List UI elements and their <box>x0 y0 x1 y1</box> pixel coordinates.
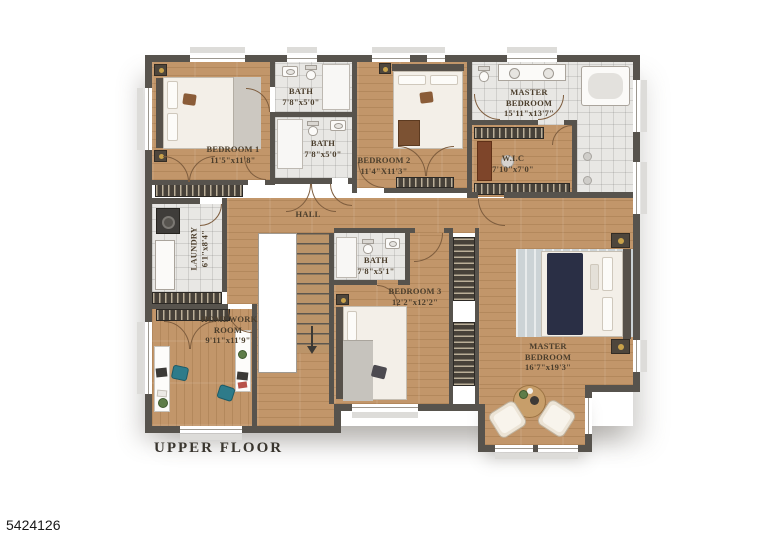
wall <box>334 228 415 233</box>
floor-plant <box>158 398 168 408</box>
window <box>352 404 418 411</box>
pillow <box>430 75 458 85</box>
room-label-master-bedroom: MASTER BEDROOM16'7"x19'3" <box>506 341 590 373</box>
window <box>145 322 152 394</box>
closet-master-a <box>453 237 475 301</box>
window <box>190 55 245 62</box>
bed-throw <box>343 340 373 401</box>
window-sill <box>372 47 445 53</box>
shower-icon <box>322 64 350 110</box>
washer-icon <box>156 208 180 234</box>
sink-icon <box>330 120 346 131</box>
accent-pillow <box>182 93 196 106</box>
window-sill <box>137 88 143 150</box>
wall <box>270 112 357 117</box>
window <box>585 398 592 434</box>
desk-plant <box>238 350 247 359</box>
window-sill <box>287 47 317 53</box>
nightstand <box>611 339 630 354</box>
toilet-icon <box>305 65 317 81</box>
room-label-bath-middle: BATH7'8"x5'0" <box>298 138 348 159</box>
desk-chair <box>171 364 190 381</box>
laptop-icon <box>156 367 168 377</box>
wall <box>384 188 472 193</box>
wall <box>475 228 479 404</box>
closet-bedroom-1 <box>155 184 243 197</box>
stairs <box>297 233 329 353</box>
room-label-bath-lower: BATH7'8"x5'1" <box>350 255 402 276</box>
window <box>372 55 410 62</box>
pillow <box>398 75 426 85</box>
window <box>145 88 152 150</box>
pillow <box>602 297 613 331</box>
pillow <box>602 257 613 291</box>
listing-number: 5424126 <box>6 518 61 532</box>
window <box>538 445 578 452</box>
closet-bedroom-2 <box>396 177 454 188</box>
accent-pillow <box>419 91 433 104</box>
wall <box>222 198 227 292</box>
wall <box>585 385 640 392</box>
closet-master-b <box>453 322 475 386</box>
toilet-icon <box>362 239 374 255</box>
laundry-counter <box>155 240 175 290</box>
bed-navy-throw <box>547 253 583 335</box>
room-label-master-bath: MASTER BEDROOM15'11"x13'7" <box>487 87 571 119</box>
window <box>633 340 640 372</box>
wall <box>152 198 200 204</box>
wall <box>467 192 478 198</box>
room-label-bath-top: BATH7'8"x5'0" <box>276 86 326 107</box>
room-label-hall: HALL <box>282 209 334 220</box>
window-sill <box>641 80 647 132</box>
wall <box>152 304 228 309</box>
papers <box>157 390 168 398</box>
shower-fixture-icon <box>583 152 592 161</box>
wic-shelf-top <box>474 127 544 139</box>
wall <box>334 280 377 285</box>
window <box>633 80 640 132</box>
floor-caption: UPPER FLOOR <box>154 441 283 456</box>
pillow <box>347 311 357 341</box>
sink-icon <box>282 66 298 77</box>
nightstand <box>611 233 630 248</box>
window <box>495 445 533 452</box>
toilet-icon <box>307 121 319 137</box>
stairs-arrow <box>311 326 313 346</box>
bed-bedroom-2 <box>392 64 464 71</box>
window <box>507 55 557 62</box>
wall <box>504 192 640 198</box>
window-sill <box>137 322 143 394</box>
nightstand <box>154 64 167 76</box>
table-decor <box>527 388 533 394</box>
wall <box>405 233 410 285</box>
wall <box>398 280 410 285</box>
room-label-laundry: LAUNDRY6'1"x8'4" <box>188 218 209 280</box>
wall <box>472 120 538 125</box>
wall <box>145 426 341 433</box>
window <box>633 162 640 214</box>
window-sill <box>641 340 647 372</box>
window-sill <box>507 47 557 53</box>
window-sill <box>352 412 418 418</box>
window-sill <box>190 47 245 53</box>
window <box>427 55 445 62</box>
nightstand <box>379 63 391 74</box>
wall <box>449 228 453 404</box>
sink-icon <box>385 238 400 249</box>
bathtub-icon <box>581 66 630 106</box>
table-decor <box>530 396 539 405</box>
floor-plan: BEDROOM 111'5"x11'8" BATH7'8"x5'0" BATH7… <box>0 0 768 542</box>
wall <box>467 62 472 198</box>
bed-bedroom-3 <box>336 307 343 399</box>
books <box>238 381 248 388</box>
pillow <box>167 81 178 109</box>
pillow <box>590 264 599 290</box>
window <box>287 55 317 62</box>
nightstand <box>336 294 349 305</box>
laptop-icon <box>237 371 249 380</box>
pillow <box>167 113 178 141</box>
room-label-bedroom-2: BEDROOM 211'4"X11'3" <box>352 155 416 176</box>
bed-master <box>623 249 631 339</box>
window-sill <box>641 162 647 214</box>
wall <box>329 233 334 404</box>
room-label-bedroom-1: BEDROOM 111'5"x11'8" <box>186 144 280 165</box>
bed-bedroom-1 <box>156 78 163 148</box>
bed-bench <box>398 120 420 146</box>
toilet-icon <box>478 66 490 83</box>
stairwell-void <box>258 233 297 373</box>
room-label-homework: HOMEWORK ROOM9'11"x11'9" <box>201 314 255 346</box>
shower-fixture-icon <box>583 176 592 185</box>
double-vanity-icon <box>498 64 566 81</box>
room-label-bedroom-3: BEDROOM 312'2"x12'2" <box>382 286 448 307</box>
wall <box>270 62 275 87</box>
window <box>180 426 242 433</box>
window-sill <box>495 453 578 459</box>
stairs-arrowhead <box>307 346 317 354</box>
room-label-wic: W.I.C7'10"x7'0" <box>483 153 543 174</box>
wall <box>572 120 577 197</box>
laundry-shelf <box>152 292 222 304</box>
